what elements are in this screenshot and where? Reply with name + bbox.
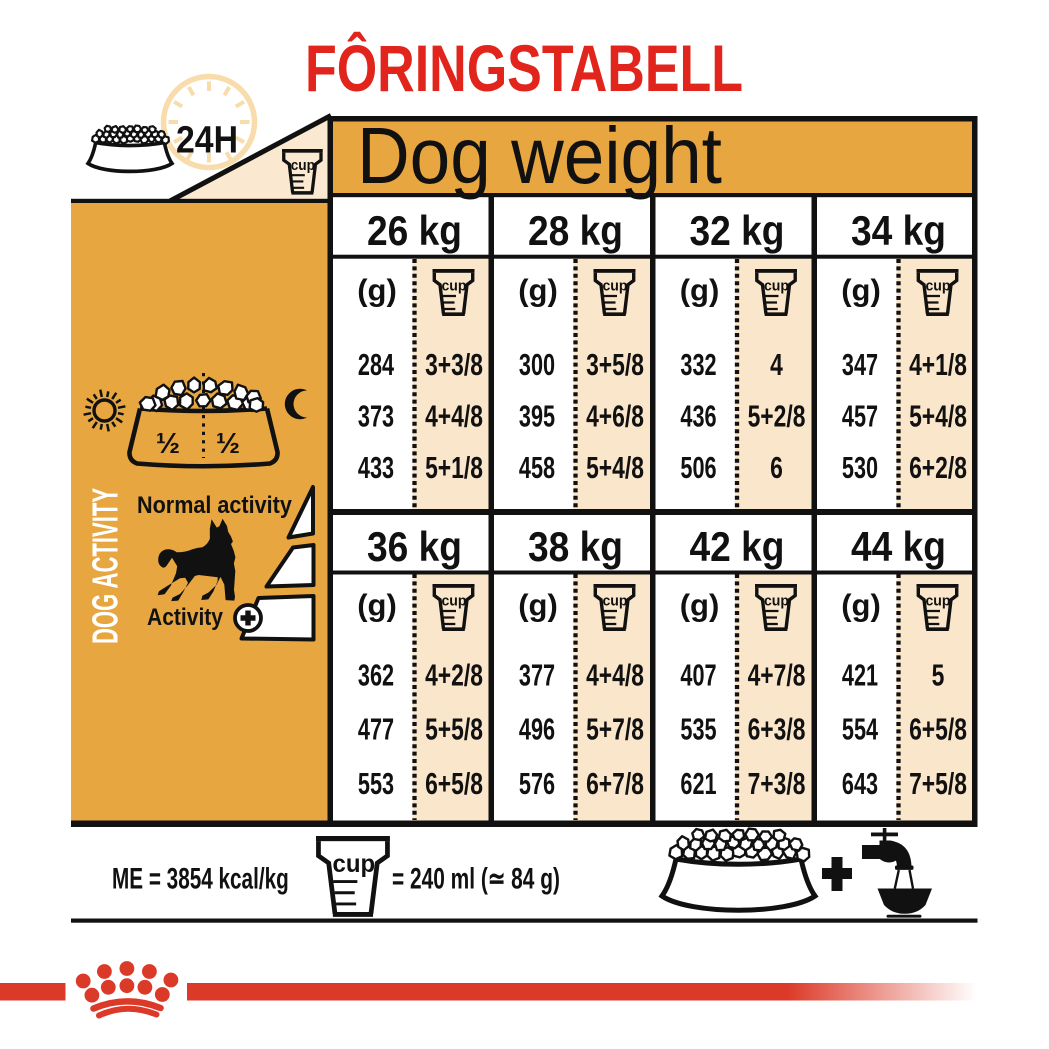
svg-text:(g): (g) [841, 273, 881, 308]
svg-text:4+4/8: 4+4/8 [586, 658, 644, 692]
svg-text:½: ½ [156, 428, 180, 460]
svg-text:36 kg: 36 kg [367, 524, 462, 571]
svg-text:5+4/8: 5+4/8 [909, 399, 967, 433]
svg-text:(g): (g) [518, 273, 558, 308]
svg-text:32 kg: 32 kg [689, 208, 784, 255]
svg-text:6+2/8: 6+2/8 [909, 451, 967, 485]
svg-text:284: 284 [358, 347, 394, 382]
svg-text:(g): (g) [841, 588, 881, 623]
svg-text:5+2/8: 5+2/8 [748, 399, 806, 433]
svg-text:4+6/8: 4+6/8 [586, 399, 644, 433]
svg-text:28 kg: 28 kg [528, 208, 623, 255]
svg-text:395: 395 [519, 399, 555, 434]
svg-text:373: 373 [358, 399, 394, 434]
svg-text:FÔRINGSTABELL: FÔRINGSTABELL [305, 31, 743, 105]
svg-text:347: 347 [842, 347, 878, 382]
svg-text:535: 535 [680, 712, 716, 747]
svg-text:ME = 3854 kcal/kg: ME = 3854 kcal/kg [112, 863, 289, 896]
svg-text:576: 576 [519, 766, 555, 801]
svg-text:621: 621 [680, 766, 716, 801]
svg-text:5+5/8: 5+5/8 [425, 713, 483, 747]
svg-text:3+5/8: 3+5/8 [586, 348, 644, 382]
svg-text:42 kg: 42 kg [689, 524, 784, 571]
svg-text:26 kg: 26 kg [367, 208, 462, 255]
svg-text:38 kg: 38 kg [528, 524, 623, 571]
svg-text:4+4/8: 4+4/8 [425, 399, 483, 433]
svg-text:(g): (g) [518, 588, 558, 623]
svg-text:5+4/8: 5+4/8 [586, 451, 644, 485]
svg-text:477: 477 [358, 712, 394, 747]
svg-text:5: 5 [932, 658, 945, 692]
svg-text:3+3/8: 3+3/8 [425, 348, 483, 382]
svg-text:300: 300 [519, 347, 555, 382]
svg-text:421: 421 [842, 658, 878, 693]
svg-text:DOG ACTIVITY: DOG ACTIVITY [86, 488, 126, 644]
svg-text:Normal activity: Normal activity [137, 491, 292, 518]
svg-text:(g): (g) [357, 273, 397, 308]
svg-text:458: 458 [519, 450, 555, 485]
svg-text:6+5/8: 6+5/8 [909, 713, 967, 747]
svg-text:4+7/8: 4+7/8 [748, 658, 806, 692]
svg-text:cup: cup [333, 851, 376, 879]
svg-text:643: 643 [842, 766, 878, 801]
svg-text:34 kg: 34 kg [851, 208, 946, 255]
svg-text:½: ½ [216, 428, 240, 460]
svg-text:Activity: Activity [147, 604, 223, 631]
svg-text:5+1/8: 5+1/8 [425, 451, 483, 485]
svg-text:554: 554 [842, 712, 878, 747]
svg-text:(g): (g) [680, 588, 720, 623]
svg-text:436: 436 [680, 399, 716, 434]
svg-text:Dog weight: Dog weight [357, 112, 722, 201]
svg-text:6: 6 [770, 451, 783, 485]
svg-text:7+3/8: 7+3/8 [748, 767, 806, 801]
svg-text:4+1/8: 4+1/8 [909, 348, 967, 382]
svg-text:433: 433 [358, 450, 394, 485]
svg-text:362: 362 [358, 658, 394, 693]
svg-text:44 kg: 44 kg [851, 524, 946, 571]
svg-text:4: 4 [770, 348, 783, 382]
svg-text:7+5/8: 7+5/8 [909, 767, 967, 801]
svg-text:(g): (g) [680, 273, 720, 308]
svg-text:407: 407 [680, 658, 716, 693]
svg-text:496: 496 [519, 712, 555, 747]
svg-text:530: 530 [842, 450, 878, 485]
svg-text:6+3/8: 6+3/8 [748, 713, 806, 747]
svg-text:= 240 ml (≃ 84 g): = 240 ml (≃ 84 g) [392, 863, 560, 895]
svg-text:332: 332 [680, 347, 716, 382]
svg-text:24H: 24H [176, 118, 238, 161]
svg-text:506: 506 [680, 450, 716, 485]
svg-text:(g): (g) [357, 588, 397, 623]
svg-text:5+7/8: 5+7/8 [586, 713, 644, 747]
svg-text:553: 553 [358, 766, 394, 801]
svg-text:6+5/8: 6+5/8 [425, 767, 483, 801]
svg-text:6+7/8: 6+7/8 [586, 767, 644, 801]
svg-text:4+2/8: 4+2/8 [425, 658, 483, 692]
svg-text:377: 377 [519, 658, 555, 693]
svg-text:457: 457 [842, 399, 878, 434]
